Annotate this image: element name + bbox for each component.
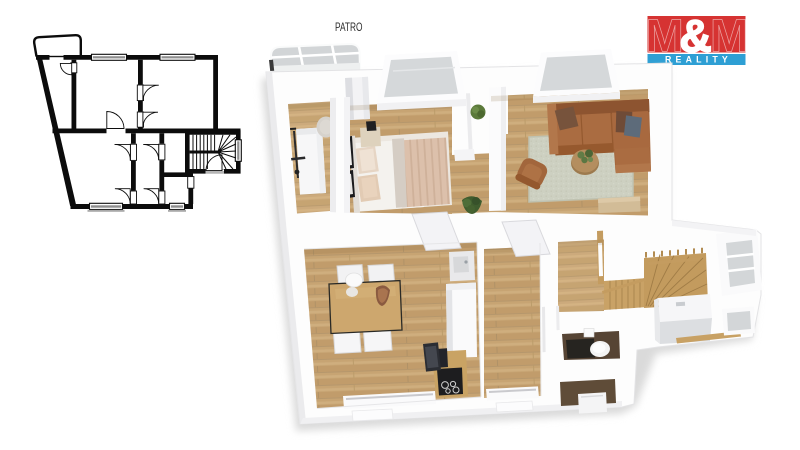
svg-text:PATRO: PATRO [335, 22, 363, 34]
svg-text:REALITY: REALITY [665, 55, 732, 65]
